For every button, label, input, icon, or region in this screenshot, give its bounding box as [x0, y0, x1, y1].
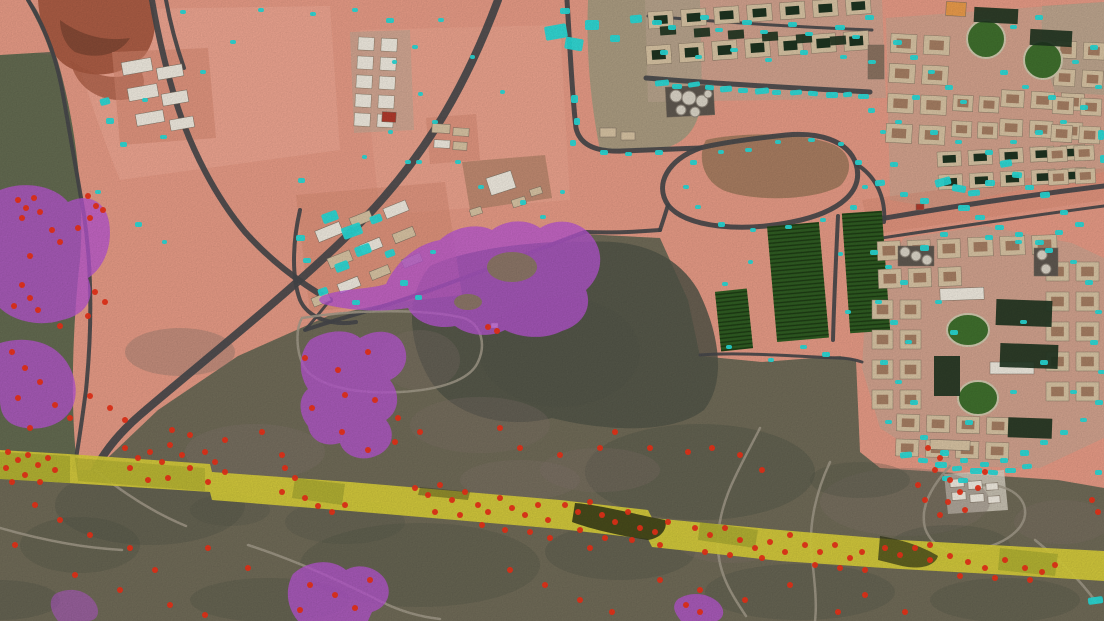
grain-texture [0, 0, 1104, 621]
satellite-change-detection-view [0, 0, 1104, 621]
satellite-image-canvas [0, 0, 1104, 621]
